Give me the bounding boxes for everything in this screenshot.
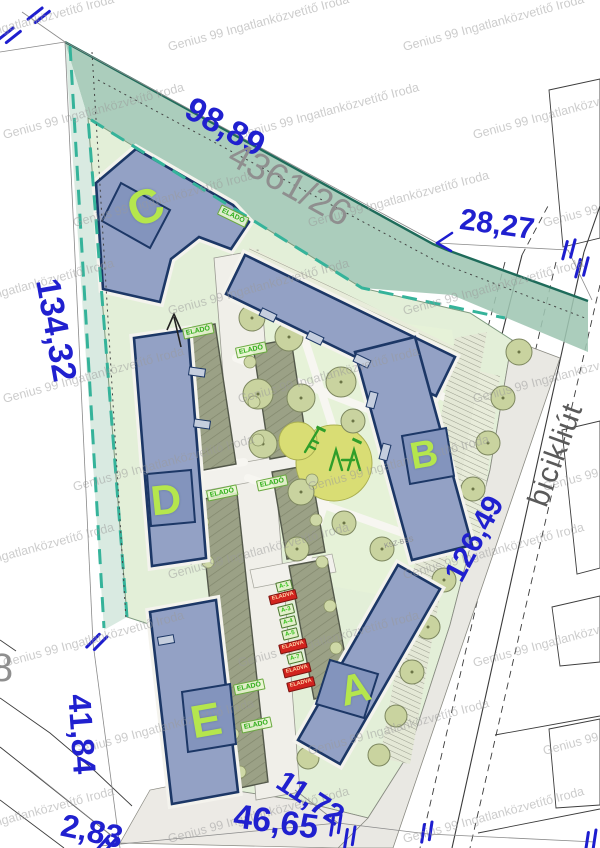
building-b-court xyxy=(402,428,454,484)
site-plan: Genius 99 Ingatlanközvetítő IrodaGenius … xyxy=(0,0,600,848)
building-e-court xyxy=(182,684,236,752)
site-plan-drawing xyxy=(0,0,600,848)
building-d-court xyxy=(147,470,195,526)
